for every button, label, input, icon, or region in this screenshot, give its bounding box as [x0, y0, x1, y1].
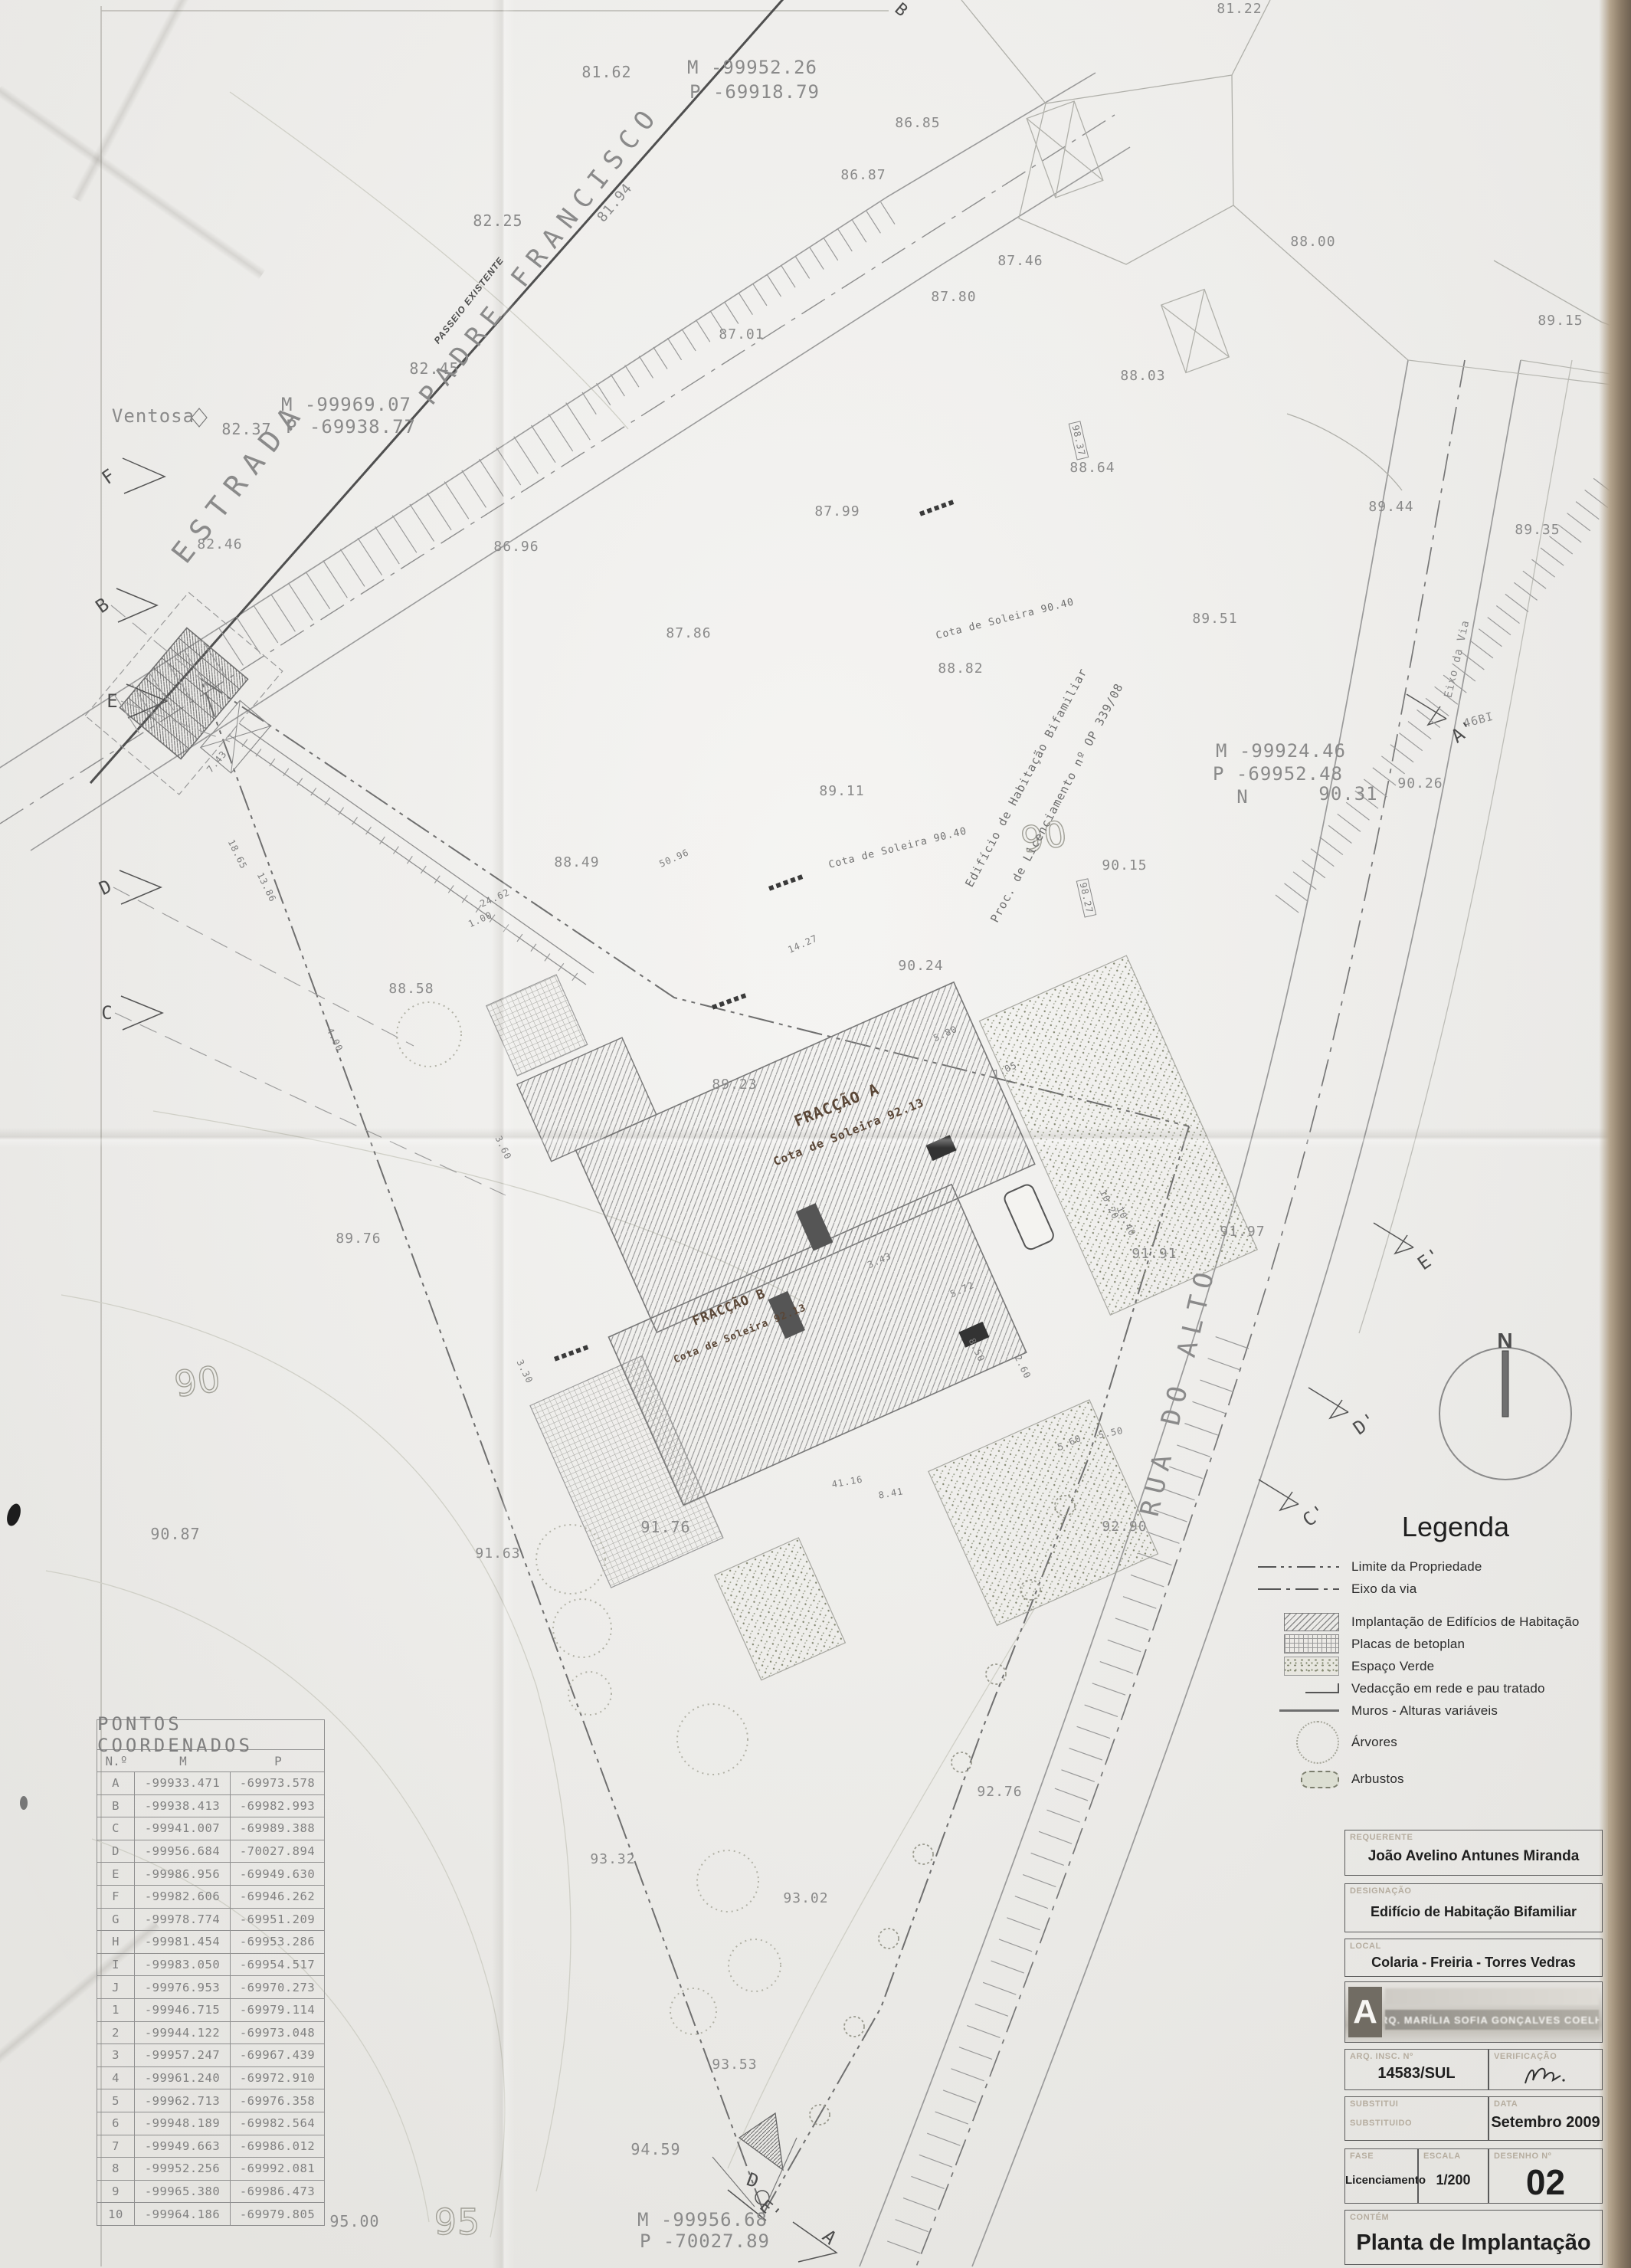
points-table-row: C-99941.007-69989.388	[97, 1817, 325, 1840]
spot-elevation: 81.22	[1217, 2, 1262, 16]
points-table-cell: A	[97, 1772, 135, 1795]
legend-item: Placas de betoplan	[1256, 1633, 1609, 1655]
points-table-cell: H	[97, 1931, 135, 1954]
section-marker-f: F	[99, 466, 119, 488]
spot-elevation: 89.76	[336, 1232, 381, 1246]
spot-elevation: 92.90	[1102, 1520, 1147, 1534]
section-marker-b2: B	[891, 1, 910, 21]
section-marker-e-prime: E'	[1414, 1244, 1444, 1273]
escala-value: 1/200	[1419, 2165, 1488, 2188]
points-table-cell: 8	[97, 2158, 135, 2181]
spot-elevation: 89.51	[1192, 612, 1237, 626]
legend-item-label: Arbustos	[1351, 1771, 1404, 1787]
legend-area-items: Implantação de Edifícios de HabitaçãoPla…	[1256, 1611, 1609, 1795]
contour-label: 95	[434, 2204, 481, 2240]
points-table-row: H-99981.454-69953.286	[97, 1931, 325, 1954]
points-table-cell: D	[97, 1840, 135, 1863]
spot-elevation: 82.45	[409, 361, 459, 376]
coord-callout: P -69938.77	[286, 418, 416, 436]
points-table-cell: -69992.081	[230, 2158, 325, 2181]
shrub-symbol	[1301, 1771, 1339, 1788]
desenho-label: DESENHO Nº	[1494, 2152, 1551, 2161]
points-table-cell: 2	[97, 2022, 135, 2045]
spot-elevation: 91.97	[1220, 1225, 1265, 1239]
scanned-site-plan-sheet: ESTRADAPADRE FRANCISCOPASSEIO EXISTENTER…	[0, 0, 1631, 2268]
points-table-cell: B	[97, 1795, 135, 1818]
points-table-cell: -99956.684	[135, 1840, 230, 1863]
legend-item-label: Eixo da via	[1351, 1581, 1416, 1597]
dimension: 3.43	[866, 1251, 893, 1270]
spot-elevation: 91.91	[1132, 1247, 1177, 1261]
wall-symbol	[1279, 1709, 1339, 1712]
legend-item-label: Vedacção em rede e pau tratado	[1351, 1681, 1545, 1696]
dimension: 1.00	[467, 910, 494, 929]
points-table-cell: -99962.713	[135, 2089, 230, 2112]
points-table-cell: -99981.454	[135, 1931, 230, 1954]
section-marker-c: C	[101, 1004, 113, 1022]
points-table-row: D-99956.684-70027.894	[97, 1840, 325, 1863]
points-table-cell: -99978.774	[135, 1909, 230, 1932]
points-table-cell: -69982.993	[230, 1795, 325, 1818]
spot-elevation: 89.35	[1515, 523, 1560, 537]
points-table-row: 8-99952.256-69992.081	[97, 2158, 325, 2181]
contem-label: CONTÉM	[1350, 2213, 1389, 2222]
legend-item-label: Espaço Verde	[1351, 1659, 1434, 1674]
points-table-cell: -99941.007	[135, 1817, 230, 1840]
legend-item: Implantação de Edifícios de Habitação	[1256, 1611, 1609, 1633]
eixo-da-via-label: Eixo da Via	[1443, 619, 1472, 699]
points-table-cell: -69946.262	[230, 1886, 325, 1909]
points-table: PONTOS COORDENADOS N.º M P A-99933.471-6…	[97, 1719, 325, 2226]
points-table-row: G-99978.774-69951.209	[97, 1909, 325, 1932]
points-table-cell: -69986.012	[230, 2135, 325, 2158]
points-table-row: A-99933.471-69973.578	[97, 1772, 325, 1795]
spot-elevation: 90.24	[898, 959, 943, 973]
dimension: 7.05	[992, 1060, 1019, 1079]
local-value: Colaria - Freiria - Torres Vedras	[1345, 1945, 1602, 1971]
fase-value: Licenciamento	[1345, 2166, 1417, 2187]
points-table-cell: 9	[97, 2181, 135, 2204]
dimension: 13.86	[256, 871, 278, 903]
spot-elevation: 89.11	[819, 785, 864, 798]
dimension: 5.72	[949, 1280, 976, 1299]
legend-item-label: Placas de betoplan	[1351, 1637, 1465, 1652]
col-header-p: P	[231, 1750, 326, 1771]
points-table-cell: -70027.894	[230, 1840, 325, 1863]
points-table-cell: J	[97, 1976, 135, 1999]
points-table-cell: 5	[97, 2089, 135, 2112]
stamp-logo: A	[1348, 1987, 1382, 2037]
fence-symbol	[1305, 1683, 1339, 1693]
points-table-cell: -99952.256	[135, 2158, 230, 2181]
contem-value: Planta de Implantação	[1345, 2220, 1602, 2256]
dimension: 5.80	[932, 1024, 959, 1043]
requerente-value: João Avelino Antunes Miranda	[1345, 1840, 1602, 1865]
street-name-rua-do-alto: RUA DO ALTO	[1137, 1263, 1220, 1519]
data-value: Setembro 2009	[1489, 2106, 1602, 2132]
points-table-row: F-99982.606-69946.262	[97, 1886, 325, 1909]
coord-callout: 90.31	[1318, 785, 1377, 803]
points-table-cell: -99976.953	[135, 1976, 230, 1999]
points-table-cell: 10	[97, 2203, 135, 2226]
legend: Legenda Limite da PropriedadeEixo da via…	[1256, 1511, 1609, 1795]
local-label: LOCAL	[1350, 1942, 1381, 1951]
legend-item: Limite da Propriedade	[1256, 1555, 1609, 1578]
points-table-row: E-99986.956-69949.630	[97, 1863, 325, 1886]
points-table-cell: -69976.358	[230, 2089, 325, 2112]
points-table-row: 7-99949.663-69986.012	[97, 2135, 325, 2158]
spot-elevation: 87.01	[719, 328, 764, 342]
property-limit-line	[1258, 1566, 1339, 1568]
section-marker-d2: D	[745, 2170, 762, 2191]
points-table-cell: -69953.286	[230, 1931, 325, 1954]
coord-callout: M -99969.07	[281, 395, 411, 414]
points-table-cell: I	[97, 1954, 135, 1977]
dimension: 10.40	[1115, 1205, 1138, 1237]
points-table-cell: -69954.517	[230, 1954, 325, 1977]
col-header-m: M	[136, 1750, 231, 1771]
dimension: 2.60	[1013, 1354, 1032, 1381]
points-table-cell: -99948.189	[135, 2112, 230, 2135]
section-marker-a2: A	[819, 2227, 840, 2248]
points-table-cell: -69982.564	[230, 2112, 325, 2135]
legend-item-label: Árvores	[1351, 1735, 1397, 1750]
legend-title: Legenda	[1333, 1511, 1578, 1543]
section-marker-e: E	[106, 692, 118, 710]
points-table-cell: -69949.630	[230, 1863, 325, 1886]
points-table-cell: 3	[97, 2044, 135, 2067]
points-table-cell: -69979.114	[230, 1999, 325, 2022]
spot-elevation: 87.80	[931, 290, 976, 304]
legend-item: Espaço Verde	[1256, 1655, 1609, 1677]
verificacao-label: VERIFICAÇÃO	[1494, 2052, 1557, 2061]
coord-callout: P -70027.89	[640, 2232, 770, 2250]
points-table-cell: -69973.578	[230, 1772, 325, 1795]
legend-item: Arbustos	[1256, 1763, 1609, 1795]
architect-stamp: A ARQ. MARÍLIA SOFIA GONÇALVES COELHO	[1344, 1981, 1603, 2043]
points-table-cell: 6	[97, 2112, 135, 2135]
section-marker-d-prime: D'	[1350, 1409, 1380, 1437]
points-table-cell: F	[97, 1886, 135, 1909]
spot-elevation: 88.64	[1069, 461, 1115, 475]
dimension: 24.62	[479, 887, 511, 909]
spot-elevation: 88.82	[938, 662, 983, 676]
points-table-row: 4-99961.240-69972.910	[97, 2067, 325, 2090]
coord-callout: N	[1236, 788, 1248, 806]
spot-elevation: 89.15	[1538, 314, 1583, 328]
ventosa-label: Ventosa	[112, 407, 195, 425]
points-table-cell: 7	[97, 2135, 135, 2158]
requerente-label: REQUERENTE	[1350, 1833, 1413, 1842]
dimension: 18.65	[227, 838, 249, 870]
coord-callout: M -99952.26	[687, 58, 817, 77]
verification-signature	[1519, 2060, 1573, 2088]
data-label: DATA	[1494, 2099, 1518, 2109]
fase-label: FASE	[1350, 2152, 1374, 2161]
fraccao-b-cota-label: Cota de Soleira 92.13	[673, 1303, 808, 1365]
cota-soleira-label: Cota de Soleira 90.40	[935, 597, 1075, 641]
points-table-cell: -99965.380	[135, 2181, 230, 2204]
points-table-body: A-99933.471-69973.578B-99938.413-69982.9…	[97, 1772, 325, 2226]
points-table-header: N.º M P	[97, 1750, 325, 1772]
section-marker-b: B	[93, 595, 113, 617]
spot-elevation: 89.44	[1368, 500, 1413, 514]
points-table-cell: -69979.805	[230, 2203, 325, 2226]
spot-elevation: 81.62	[581, 64, 631, 80]
section-marker-d: D	[97, 877, 115, 898]
legend-item-label: Implantação de Edifícios de Habitação	[1351, 1614, 1580, 1630]
dimension: 4.00	[325, 1027, 344, 1054]
dimension: 8.41	[878, 1486, 904, 1500]
road-axis-line	[1258, 1588, 1339, 1590]
spot-elevation: 82.25	[473, 213, 522, 228]
points-table-row: 2-99944.122-69973.048	[97, 2022, 325, 2045]
points-table-cell: -99938.413	[135, 1795, 230, 1818]
spot-elevation: 90.15	[1102, 859, 1147, 873]
arq-insc-label: ARQ. INSC. Nº	[1350, 2052, 1413, 2061]
dimension: 50.96	[658, 847, 690, 869]
points-table-row: J-99976.953-69970.273	[97, 1976, 325, 1999]
spot-elevation: 88.49	[554, 856, 599, 870]
points-table-title: PONTOS COORDENADOS	[97, 1719, 325, 1750]
points-table-cell: -99961.240	[135, 2067, 230, 2090]
designacao-label: DESIGNAÇÃO	[1350, 1886, 1412, 1896]
spot-elevation: 88.58	[388, 982, 434, 996]
spot-elevation: 91.76	[640, 1519, 690, 1535]
points-table-cell: -99983.050	[135, 1954, 230, 1977]
spot-elevation: 86.96	[493, 540, 539, 554]
green-space-swatch	[1284, 1657, 1339, 1676]
points-table-cell: -69989.388	[230, 1817, 325, 1840]
coord-callout: M -99956.68	[637, 2211, 768, 2229]
spot-elevation: 90.26	[1397, 777, 1443, 791]
legend-item: Muros - Alturas variáveis	[1256, 1699, 1609, 1722]
points-table-row: 1-99946.715-69979.114	[97, 1999, 325, 2022]
spot-elevation: 93.32	[590, 1853, 635, 1867]
spot-elevation: 86.85	[895, 116, 940, 130]
points-table-cell: E	[97, 1863, 135, 1886]
col-header-n: N.º	[97, 1750, 136, 1771]
spot-elevation: 91.63	[475, 1547, 520, 1561]
legend-item-label: Limite da Propriedade	[1351, 1559, 1482, 1575]
spot-elevation: 88.00	[1290, 235, 1335, 249]
dimension: 7.43	[205, 749, 228, 775]
legend-item: Eixo da via	[1256, 1578, 1609, 1600]
points-table-cell: -99946.715	[135, 1999, 230, 2022]
coord-callout: P -69952.48	[1213, 765, 1343, 783]
coord-callout: M -99924.46	[1216, 742, 1346, 760]
dimension: 5.50	[1098, 1426, 1125, 1440]
points-table-cell: -69986.473	[230, 2181, 325, 2204]
designacao-value: Edifício de Habitação Bifamiliar	[1345, 1896, 1602, 1920]
substitui-label: SUBSTITUI	[1350, 2099, 1398, 2109]
escala-label: ESCALA	[1423, 2152, 1461, 2161]
points-table-cell: -99944.122	[135, 2022, 230, 2045]
points-table-cell: -99933.471	[135, 1772, 230, 1795]
spot-elevation: 82.37	[221, 421, 271, 437]
legend-line-items: Limite da PropriedadeEixo da via	[1256, 1555, 1609, 1600]
legend-item-label: Muros - Alturas variáveis	[1351, 1703, 1498, 1719]
points-table-cell: -99964.186	[135, 2203, 230, 2226]
points-table-cell: -69970.273	[230, 1976, 325, 1999]
compass-north-label: N	[1497, 1330, 1513, 1352]
spot-elevation: 93.02	[783, 1892, 828, 1906]
points-table-row: B-99938.413-69982.993	[97, 1795, 325, 1818]
dimension: 41.16	[831, 1475, 864, 1490]
points-table-cell: G	[97, 1909, 135, 1932]
points-table-row: 3-99957.247-69967.439	[97, 2044, 325, 2067]
points-table-cell: -69972.910	[230, 2067, 325, 2090]
spot-elevation: 94.59	[630, 2142, 680, 2157]
points-table-cell: -99986.956	[135, 1863, 230, 1886]
spot-elevation: 95.00	[329, 2214, 379, 2229]
points-table-row: 10-99964.186-69979.805	[97, 2203, 325, 2226]
spot-elevation: 93.53	[712, 2058, 757, 2072]
spot-elevation: 89.23	[712, 1078, 757, 1092]
points-table-cell: -99982.606	[135, 1886, 230, 1909]
dimension: 14.27	[787, 933, 819, 955]
road-station-label: 98.27	[1076, 878, 1097, 917]
points-table-row: 5-99962.713-69976.358	[97, 2089, 325, 2112]
dimension: 5.60	[1056, 1434, 1083, 1452]
points-table-cell: -69967.439	[230, 2044, 325, 2067]
points-table-cell: -99957.247	[135, 2044, 230, 2067]
points-table-cell: 1	[97, 1999, 135, 2022]
points-table-cell: C	[97, 1817, 135, 1840]
points-table-cell: 4	[97, 2067, 135, 2090]
building-hatch-swatch	[1284, 1613, 1339, 1631]
points-table-row: 9-99965.380-69986.473	[97, 2181, 325, 2204]
spot-elevation: 87.46	[997, 254, 1043, 268]
title-block: REQUERENTE João Avelino Antunes Miranda …	[1344, 1827, 1603, 2268]
substituido-label: SUBSTITUIDO	[1350, 2119, 1412, 2128]
dimension: 3.60	[493, 1135, 513, 1162]
points-table-row: 6-99948.189-69982.564	[97, 2112, 325, 2135]
spot-elevation: 87.86	[666, 627, 711, 641]
points-table-cell: -69951.209	[230, 1909, 325, 1932]
stamp-band	[1385, 1988, 1599, 2005]
cota-soleira-label: Cota de Soleira 90.40	[827, 826, 968, 870]
spot-elevation: 92.76	[977, 1785, 1022, 1799]
spot-elevation: 87.99	[814, 505, 860, 519]
dimension: 8.50	[967, 1337, 986, 1364]
contour-label: 90	[172, 1361, 223, 1402]
points-table-row: I-99983.050-69954.517	[97, 1954, 325, 1977]
betoplan-swatch	[1284, 1634, 1339, 1653]
dimension: 3.30	[515, 1359, 534, 1385]
points-table-cell: -69973.048	[230, 2022, 325, 2045]
tree-symbol	[1296, 1721, 1339, 1764]
legend-item: Vedacção em rede e pau tratado	[1256, 1677, 1609, 1699]
spot-elevation: 86.87	[840, 169, 886, 182]
road-station-label: 98.37	[1069, 421, 1089, 460]
coord-callout: P -69918.79	[689, 83, 820, 101]
spot-elevation: 90.87	[150, 1526, 200, 1542]
stamp-text: ARQ. MARÍLIA SOFIA GONÇALVES COELHO	[1385, 2010, 1599, 2030]
spot-elevation: 88.03	[1120, 369, 1165, 383]
legend-item: Árvores	[1256, 1722, 1609, 1763]
spot-elevation: 82.46	[197, 538, 242, 552]
points-table-cell: -99949.663	[135, 2135, 230, 2158]
